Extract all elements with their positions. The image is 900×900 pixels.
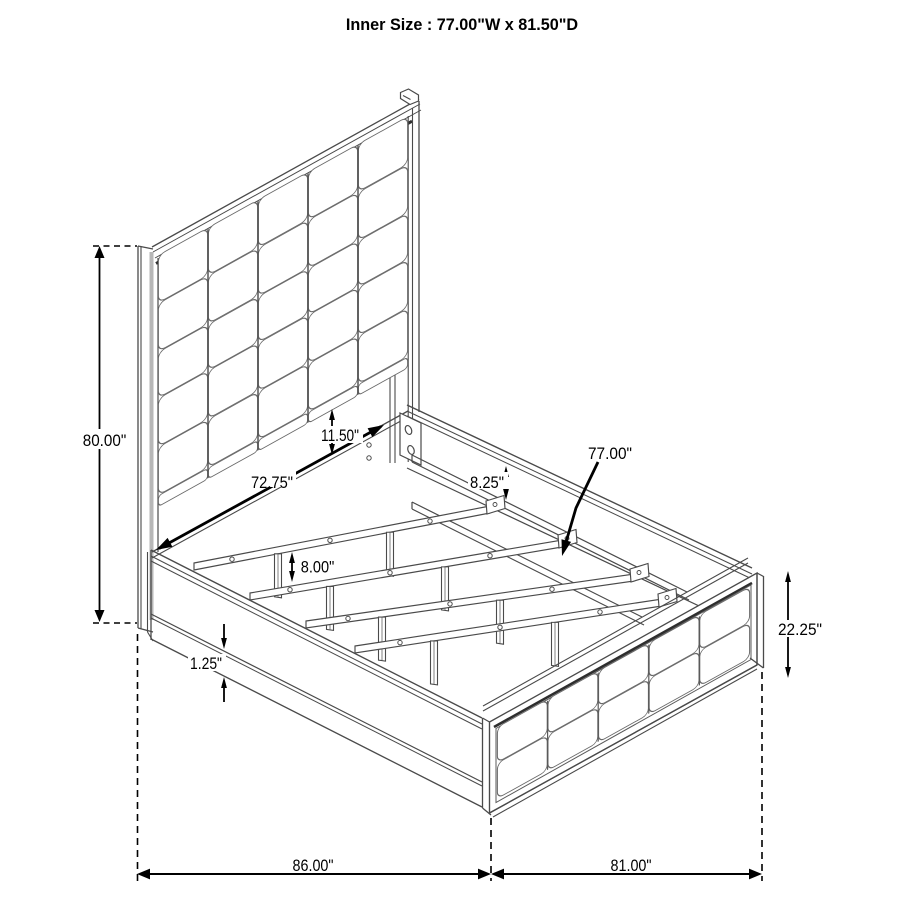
svg-text:77.00": 77.00" <box>588 445 632 463</box>
svg-text:22.25": 22.25" <box>778 621 822 639</box>
svg-text:80.00": 80.00" <box>83 432 127 450</box>
svg-text:86.00": 86.00" <box>293 857 334 875</box>
svg-text:Inner Size : 77.00"W x 81.50"D: Inner Size : 77.00"W x 81.50"D <box>346 16 578 34</box>
svg-text:72.75": 72.75" <box>251 474 293 492</box>
svg-text:8.25": 8.25" <box>470 474 504 492</box>
svg-text:81.00": 81.00" <box>611 857 652 875</box>
svg-text:8.00": 8.00" <box>301 559 335 577</box>
svg-text:1.25": 1.25" <box>190 655 222 673</box>
svg-text:11.50": 11.50" <box>321 427 359 445</box>
